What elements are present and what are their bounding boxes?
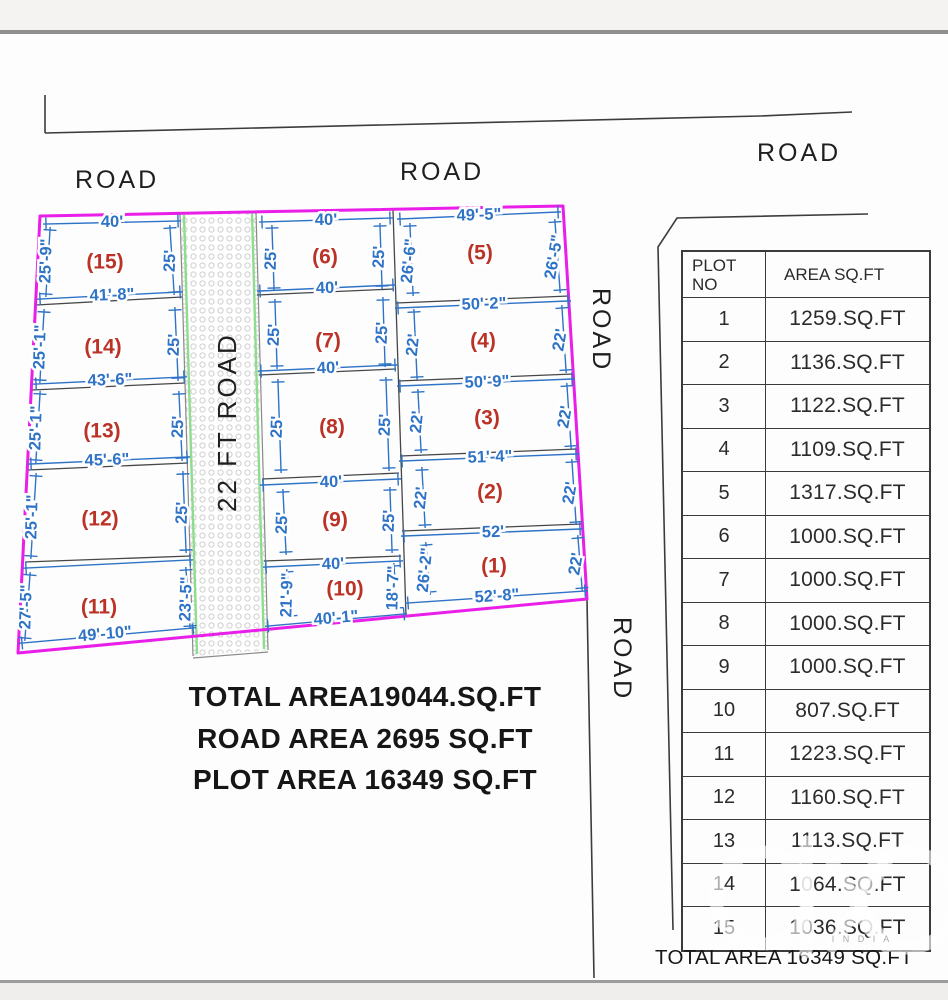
- plot-number: (10): [326, 578, 363, 601]
- dimension-p5_left: 26'-6": [398, 223, 421, 296]
- dimension-label: 25'-1": [26, 405, 46, 450]
- plot-number: (1): [481, 555, 507, 578]
- dimension-label: 27'-5": [16, 584, 36, 629]
- dimension-p3_left: 22': [407, 389, 428, 453]
- dimension-label: 25'-9": [36, 238, 56, 283]
- area-cell: 1036.SQ.FT: [766, 907, 931, 951]
- plot-no-cell: 14: [682, 863, 766, 907]
- area-cell: 1160.SQ.FT: [766, 776, 931, 820]
- table-row: 51317.SQ.FT: [682, 472, 930, 516]
- dimension-label: 50'-9": [464, 372, 509, 392]
- dimension-label: 40': [320, 473, 343, 492]
- plot-no-cell: 3: [682, 385, 766, 429]
- area-cell: 1223.SQ.FT: [766, 733, 931, 777]
- table-row: 71000.SQ.FT: [682, 559, 930, 603]
- dimension-p15_right: 25': [161, 225, 181, 295]
- dimension-label: 45'-6": [84, 450, 129, 470]
- plot-no-cell: 7: [682, 559, 766, 603]
- dimension-p9_bottom: 40': [263, 555, 403, 574]
- plot-no-cell: 6: [682, 515, 766, 559]
- area-cell: 1122.SQ.FT: [766, 385, 931, 429]
- area-cell: 1317.SQ.FT: [766, 472, 931, 516]
- dimension-p4_left: 22': [403, 309, 424, 380]
- dimension-p6_left: 25': [262, 225, 281, 291]
- table-row: 81000.SQ.FT: [682, 602, 930, 646]
- table-row: 121160.SQ.FT: [682, 776, 930, 820]
- dimension-p8_right: 25': [376, 377, 396, 471]
- dimension-label: 41'-8": [89, 285, 134, 305]
- plot-number: (4): [470, 330, 496, 353]
- dimension-label: 18'-7": [383, 565, 403, 610]
- dimension-label: 25': [268, 415, 287, 438]
- dimension-label: 40': [315, 211, 337, 229]
- table-row: 131113.SQ.FT: [682, 820, 930, 864]
- plot-number: (5): [467, 242, 493, 265]
- dimension-p10_left: 21'-9": [277, 569, 297, 619]
- dimension-label: 25': [161, 249, 180, 272]
- dimension-label: 23'-5": [176, 576, 196, 621]
- dimension-label: 25'-1": [22, 494, 42, 539]
- plot-number: (15): [86, 251, 123, 274]
- dimension-p5_right: 26'-5": [541, 219, 567, 293]
- area-cell: 1000.SQ.FT: [766, 646, 931, 690]
- right-road-line: [587, 600, 594, 978]
- dimension-label: 25': [380, 509, 399, 532]
- summary-plot-area: PLOT AREA 16349 SQ.FT: [150, 759, 580, 801]
- table-total-area: TOTAL AREA 16349 SQ.FT: [655, 946, 940, 970]
- plot-number: (9): [322, 509, 348, 532]
- table-row: 111223.SQ.FT: [682, 733, 930, 777]
- dimension-label: 50'-2": [461, 294, 506, 314]
- dimension-label: 25': [373, 321, 392, 344]
- area-cell: 1259.SQ.FT: [766, 298, 931, 342]
- dimension-p7_right: 25': [373, 297, 392, 367]
- road-label-right-lower: ROAD: [608, 617, 636, 701]
- dimension-label: 25': [370, 245, 389, 268]
- table-row: 151036.SQ.FT: [682, 907, 930, 951]
- dimension-p1_left: 26'-2": [414, 542, 437, 595]
- dimension-label: 49'-5": [456, 205, 501, 225]
- dimension-label: 52'-8": [474, 585, 520, 606]
- plot-no-cell: 11: [682, 733, 766, 777]
- road-label-top-right: ROAD: [757, 139, 841, 167]
- dimension-p2_left: 22': [411, 467, 432, 528]
- area-cell: 1136.SQ.FT: [766, 341, 931, 385]
- dimension-p9_right: 25': [380, 487, 399, 553]
- area-cell: 1109.SQ.FT: [766, 428, 931, 472]
- table-row: 10807.SQ.FT: [682, 689, 930, 733]
- dimension-p6_top: 40': [259, 211, 393, 229]
- plot-no-cell: 2: [682, 341, 766, 385]
- header-plot-no: PLOT NO: [682, 251, 766, 298]
- dimension-label: 25': [265, 323, 284, 346]
- dimension-p7_left: 25': [265, 299, 284, 369]
- table-row: 21136.SQ.FT: [682, 341, 930, 385]
- area-cell: 807.SQ.FT: [766, 689, 931, 733]
- dimension-label: 52': [482, 523, 505, 542]
- dimension-label: 26'-2": [414, 547, 437, 593]
- dimension-label: 43'-6": [87, 370, 132, 390]
- plot-no-cell: 8: [682, 602, 766, 646]
- plot-no-cell: 5: [682, 472, 766, 516]
- dimension-label: 25': [169, 415, 188, 438]
- plot-number: (3): [474, 407, 500, 430]
- dimension-p14_right: 25': [165, 307, 185, 381]
- dimension-label: 21'-9": [277, 572, 297, 617]
- dimension-p8_left: 25': [268, 379, 288, 473]
- plot-no-cell: 12: [682, 776, 766, 820]
- plot-number: (12): [81, 508, 118, 531]
- bottom-screen-bar: [0, 980, 948, 1000]
- summary-road-area: ROAD AREA 2695 SQ.FT: [150, 718, 580, 760]
- plot-number: (11): [81, 596, 117, 619]
- summary-total-area: TOTAL AREA19044.SQ.FT: [150, 676, 580, 718]
- plot-no-cell: 1: [682, 298, 766, 342]
- dimension-p8_bottom: 40': [260, 473, 401, 492]
- dimension-p10_right: 18'-7": [383, 563, 403, 611]
- dimension-label: 40'-1": [313, 607, 359, 629]
- plot-number: (6): [312, 246, 338, 269]
- dimension-label: 22': [554, 404, 576, 429]
- table-row: 31122.SQ.FT: [682, 385, 930, 429]
- dimension-p9_left: 25': [273, 489, 293, 555]
- dimension-label: 22': [403, 333, 423, 357]
- plot-no-cell: 4: [682, 428, 766, 472]
- dimension-label: 22': [411, 486, 431, 510]
- dimension-label: 40': [316, 279, 339, 298]
- dimension-p13_bottom: 45'-6": [28, 450, 190, 470]
- table-row: 11259.SQ.FT: [682, 298, 930, 342]
- plot-no-cell: 10: [682, 689, 766, 733]
- plot-no-cell: 9: [682, 646, 766, 690]
- plot-number: (8): [319, 416, 345, 439]
- plot-no-cell: 15: [682, 907, 766, 951]
- dimension-label: 25': [273, 511, 292, 534]
- plot-number: (14): [84, 336, 121, 359]
- road-label-top-center: ROAD: [400, 158, 484, 186]
- plot-layout-page: { "plan": { "road_labels": { "top_left":…: [0, 0, 948, 1000]
- central-road-label: 22 FT ROAD: [212, 332, 242, 512]
- plot-number: (2): [477, 481, 503, 504]
- road-label-right-upper: ROAD: [587, 288, 615, 372]
- area-cell: 1000.SQ.FT: [766, 515, 931, 559]
- dimension-p15_bottom: 41'-8": [37, 285, 183, 305]
- dimension-label: 40': [101, 213, 123, 231]
- area-cell: 1000.SQ.FT: [766, 602, 931, 646]
- table-header-row: PLOT NO AREA SQ.FT: [682, 251, 930, 298]
- dimension-label: 40': [317, 359, 340, 378]
- dimension-label: 40': [322, 555, 345, 574]
- table-row: 91000.SQ.FT: [682, 646, 930, 690]
- plot-number: (13): [83, 420, 120, 443]
- plot-number: (7): [315, 330, 341, 353]
- dimension-p6_right: 25': [370, 223, 389, 289]
- header-area: AREA SQ.FT: [766, 251, 931, 298]
- dimension-label: 51'-4": [467, 447, 512, 467]
- dimension-label: 22': [559, 480, 581, 505]
- dimension-label: 26'-5": [541, 233, 567, 280]
- dimension-label: 22': [565, 551, 587, 576]
- dimension-label: 22': [549, 327, 571, 352]
- area-cell: 1113.SQ.FT: [766, 820, 931, 864]
- table-row: 141064.SQ.FT: [682, 863, 930, 907]
- dimension-p14_bottom: 43'-6": [33, 370, 187, 390]
- plot-no-cell: 13: [682, 820, 766, 864]
- dimension-label: 25': [165, 333, 184, 356]
- dimension-label: 26'-6": [398, 238, 421, 284]
- table-row: 61000.SQ.FT: [682, 515, 930, 559]
- dimension-label: 22': [407, 410, 427, 434]
- road-label-top-left: ROAD: [75, 166, 159, 194]
- area-cell: 1000.SQ.FT: [766, 559, 931, 603]
- dimension-label: 25': [376, 413, 395, 436]
- top-road-line: [45, 112, 852, 133]
- area-summary: TOTAL AREA19044.SQ.FT ROAD AREA 2695 SQ.…: [150, 676, 580, 801]
- dimension-p1_bottom: 52'-8": [405, 585, 588, 610]
- dimension-label: 25': [262, 247, 281, 270]
- dimension-label: 25'-1": [30, 324, 50, 369]
- table-row: 41109.SQ.FT: [682, 428, 930, 472]
- dimension-label: 25': [173, 501, 192, 524]
- plot-area-table: PLOT NO AREA SQ.FT 11259.SQ.FT21136.SQ.F…: [681, 250, 931, 952]
- area-cell: 1064.SQ.FT: [766, 863, 931, 907]
